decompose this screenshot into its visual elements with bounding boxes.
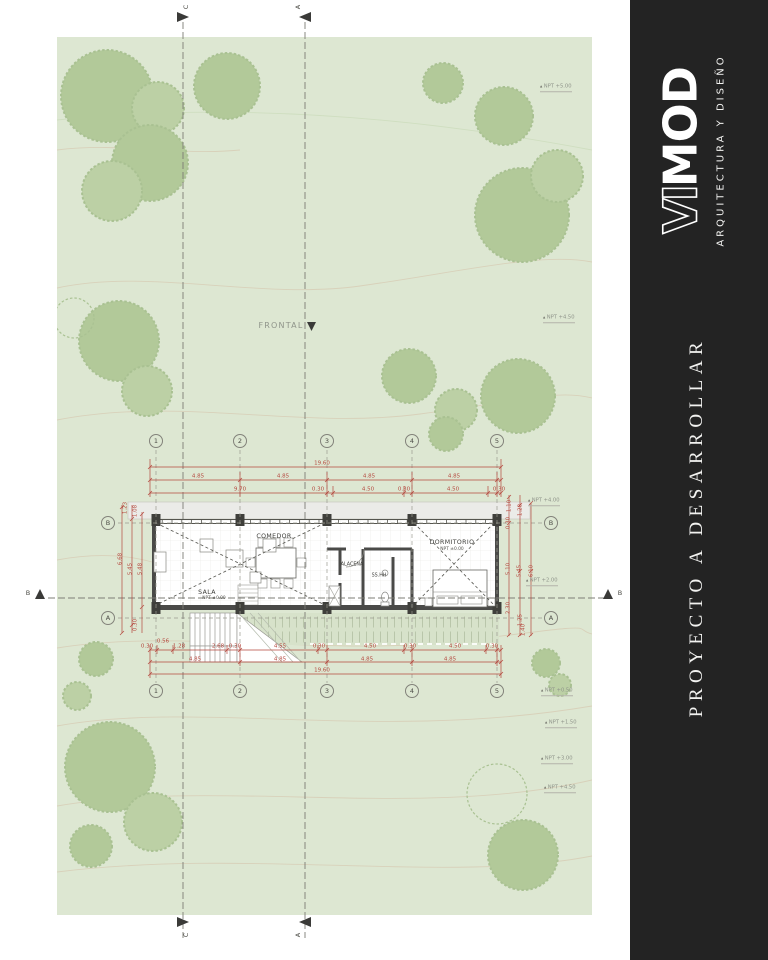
tree xyxy=(429,417,463,451)
tree xyxy=(475,87,533,145)
sheet-title: PROYECTO A DESARROLLAR xyxy=(686,317,708,737)
tree xyxy=(531,150,583,202)
tree xyxy=(70,825,112,867)
tree xyxy=(124,793,182,851)
tree xyxy=(532,649,560,677)
tree xyxy=(488,820,558,890)
architectural-sheet: { "sidebar": { "bg": "#232323", "logo_vi… xyxy=(0,0,768,960)
logo-tagline: ARQUITECTURA Y DISEÑO xyxy=(716,26,727,276)
tree xyxy=(82,161,142,221)
vimod-logo: VIMOD ARQUITECTURA Y DISEÑO xyxy=(658,26,727,276)
logo-vi: VI xyxy=(654,187,708,234)
title-block-sidebar: VIMOD ARQUITECTURA Y DISEÑO PROYECTO A D… xyxy=(630,0,768,960)
sink xyxy=(382,570,388,576)
logo-mod: MOD xyxy=(654,67,708,187)
section-marker-b-left xyxy=(35,589,45,599)
bed xyxy=(425,570,495,607)
tree xyxy=(194,53,260,119)
tree xyxy=(481,359,555,433)
site-plan-drawing xyxy=(0,0,630,960)
tree xyxy=(122,366,172,416)
tree xyxy=(549,674,571,696)
logo-wordmark: VIMOD xyxy=(658,26,704,276)
tree xyxy=(79,642,113,676)
tree xyxy=(63,682,91,710)
tree xyxy=(382,349,436,403)
section-marker-a-top xyxy=(299,12,311,22)
wood-deck xyxy=(238,613,499,645)
drawing-sheet: FRONTAL C A C A B B COMEDOR ALACENA SS.H… xyxy=(0,0,630,960)
section-marker-c-top xyxy=(177,12,189,22)
section-marker-b-right xyxy=(603,589,613,599)
tree xyxy=(423,63,463,103)
toilet xyxy=(382,592,389,602)
